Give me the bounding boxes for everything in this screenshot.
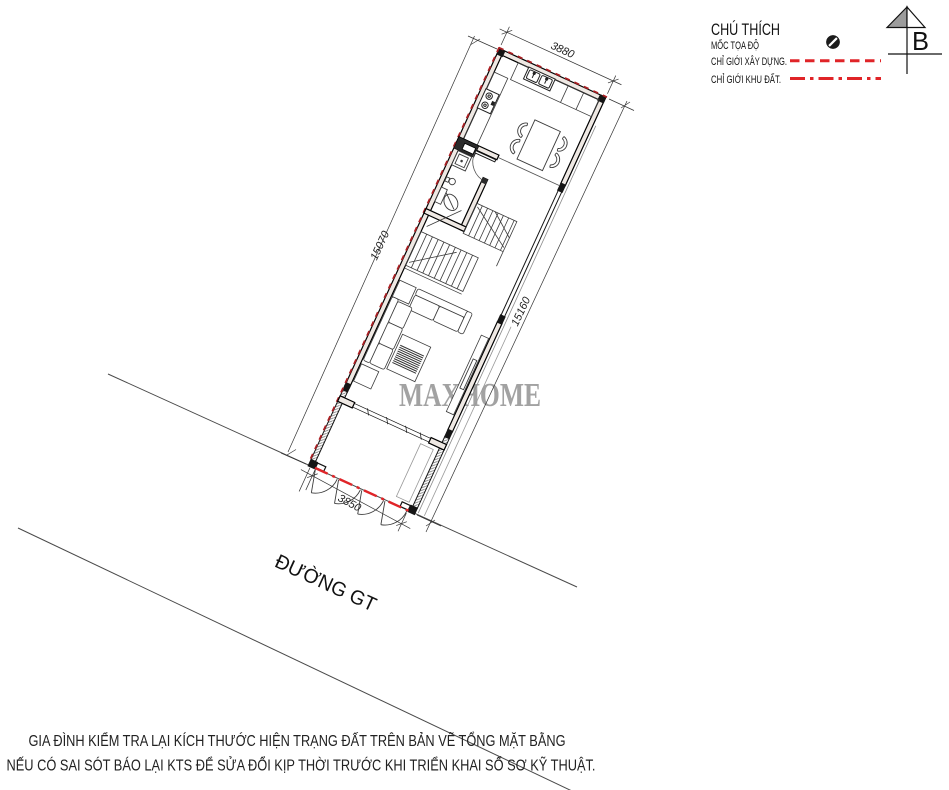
svg-text:CHỈ GIỚI KHU ĐẤT.: CHỈ GIỚI KHU ĐẤT. bbox=[711, 73, 781, 86]
svg-text:GIA ĐÌNH KIỂM TRA LẠI KÍCH THƯ: GIA ĐÌNH KIỂM TRA LẠI KÍCH THƯỚC HIỆN TR… bbox=[29, 730, 566, 750]
svg-text:CHÚ THÍCH: CHÚ THÍCH bbox=[711, 20, 780, 39]
svg-text:B: B bbox=[912, 28, 929, 56]
svg-text:CHỈ GIỚI XÂY DỰNG.: CHỈ GIỚI XÂY DỰNG. bbox=[711, 55, 787, 68]
svg-text:MỐC TỌA ĐỘ: MỐC TỌA ĐỘ bbox=[711, 38, 759, 52]
svg-text:NẾU CÓ SAI SÓT BÁO LẠI KTS ĐỂ: NẾU CÓ SAI SÓT BÁO LẠI KTS ĐỂ SỬA ĐỔI KỊ… bbox=[7, 755, 596, 775]
